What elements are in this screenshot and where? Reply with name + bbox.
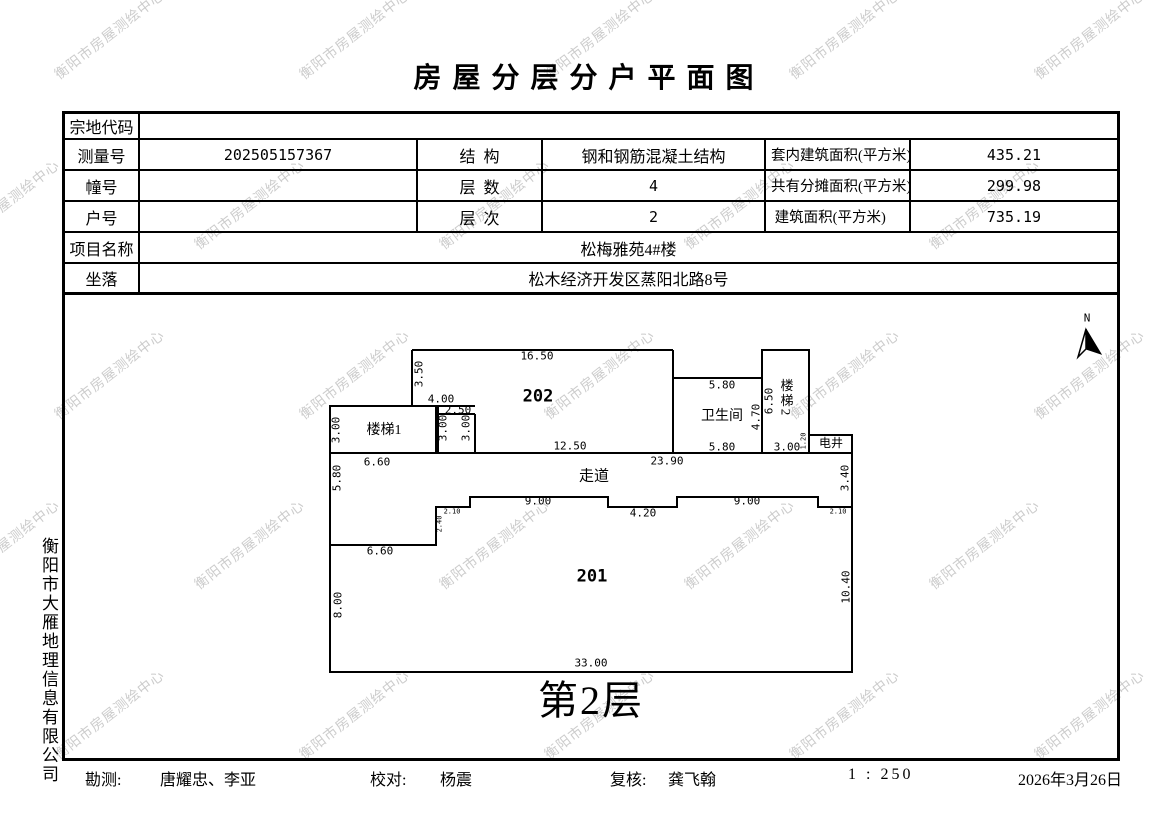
location-value: 松木经济开发区蒸阳北路8号 [140,264,1117,295]
reviewer-name: 龚飞翰 [668,766,716,790]
watermark-text: 衡阳市房屋测绘中心 [0,155,64,254]
survey-no-label: 测量号 [65,140,140,171]
company-name-vertical: 衡阳市大雁地理信息有限公司 [36,537,61,784]
info-table: 宗地代码 测量号 202505157367 结 构 钢和钢筋混凝土结构 套内建筑… [65,114,1117,295]
map-scale: 1 : 250 [848,766,913,784]
floor-level-label: 层 次 [418,202,543,233]
structure-value: 钢和钢筋混凝土结构 [543,140,766,171]
building-no-label: 幢号 [65,171,140,202]
total-area-label: 建筑面积(平方米) [766,202,911,233]
building-no-value [140,171,418,202]
unit-no-label: 户号 [65,202,140,233]
parcel-code-label: 宗地代码 [65,114,140,140]
inner-area-label: 套内建筑面积(平方米) [766,140,911,171]
parcel-code-value [140,114,1117,140]
project-name-label: 项目名称 [65,233,140,264]
shared-area-value: 299.98 [911,171,1117,202]
floor-level-value: 2 [543,202,766,233]
floorplan-document-page: 衡阳市房屋测绘中心衡阳市房屋测绘中心衡阳市房屋测绘中心衡阳市房屋测绘中心衡阳市房… [0,0,1169,827]
floor-count-label: 层 数 [418,171,543,202]
project-name-value: 松梅雅苑4#楼 [140,233,1117,264]
shared-area-label: 共有分摊面积(平方米) [766,171,911,202]
page-title: 房 屋 分 层 分 户 平 面 图 [0,56,1169,96]
reviewer-label: 复核: [610,766,646,790]
checker-label: 校对: [370,766,406,790]
surveyor-names: 唐耀忠、李亚 [160,766,256,790]
inner-area-value: 435.21 [911,140,1117,171]
checker-name: 杨震 [440,766,472,790]
total-area-value: 735.19 [911,202,1117,233]
location-label: 坐落 [65,264,140,295]
floor-count-value: 4 [543,171,766,202]
floor-caption: 第2层 [538,668,644,726]
surveyor-label: 勘测: [85,766,121,790]
structure-label: 结 构 [418,140,543,171]
document-date: 2026年3月26日 [1018,766,1122,790]
unit-no-value [140,202,418,233]
survey-no-value: 202505157367 [140,140,418,171]
north-letter: N [1084,312,1091,325]
